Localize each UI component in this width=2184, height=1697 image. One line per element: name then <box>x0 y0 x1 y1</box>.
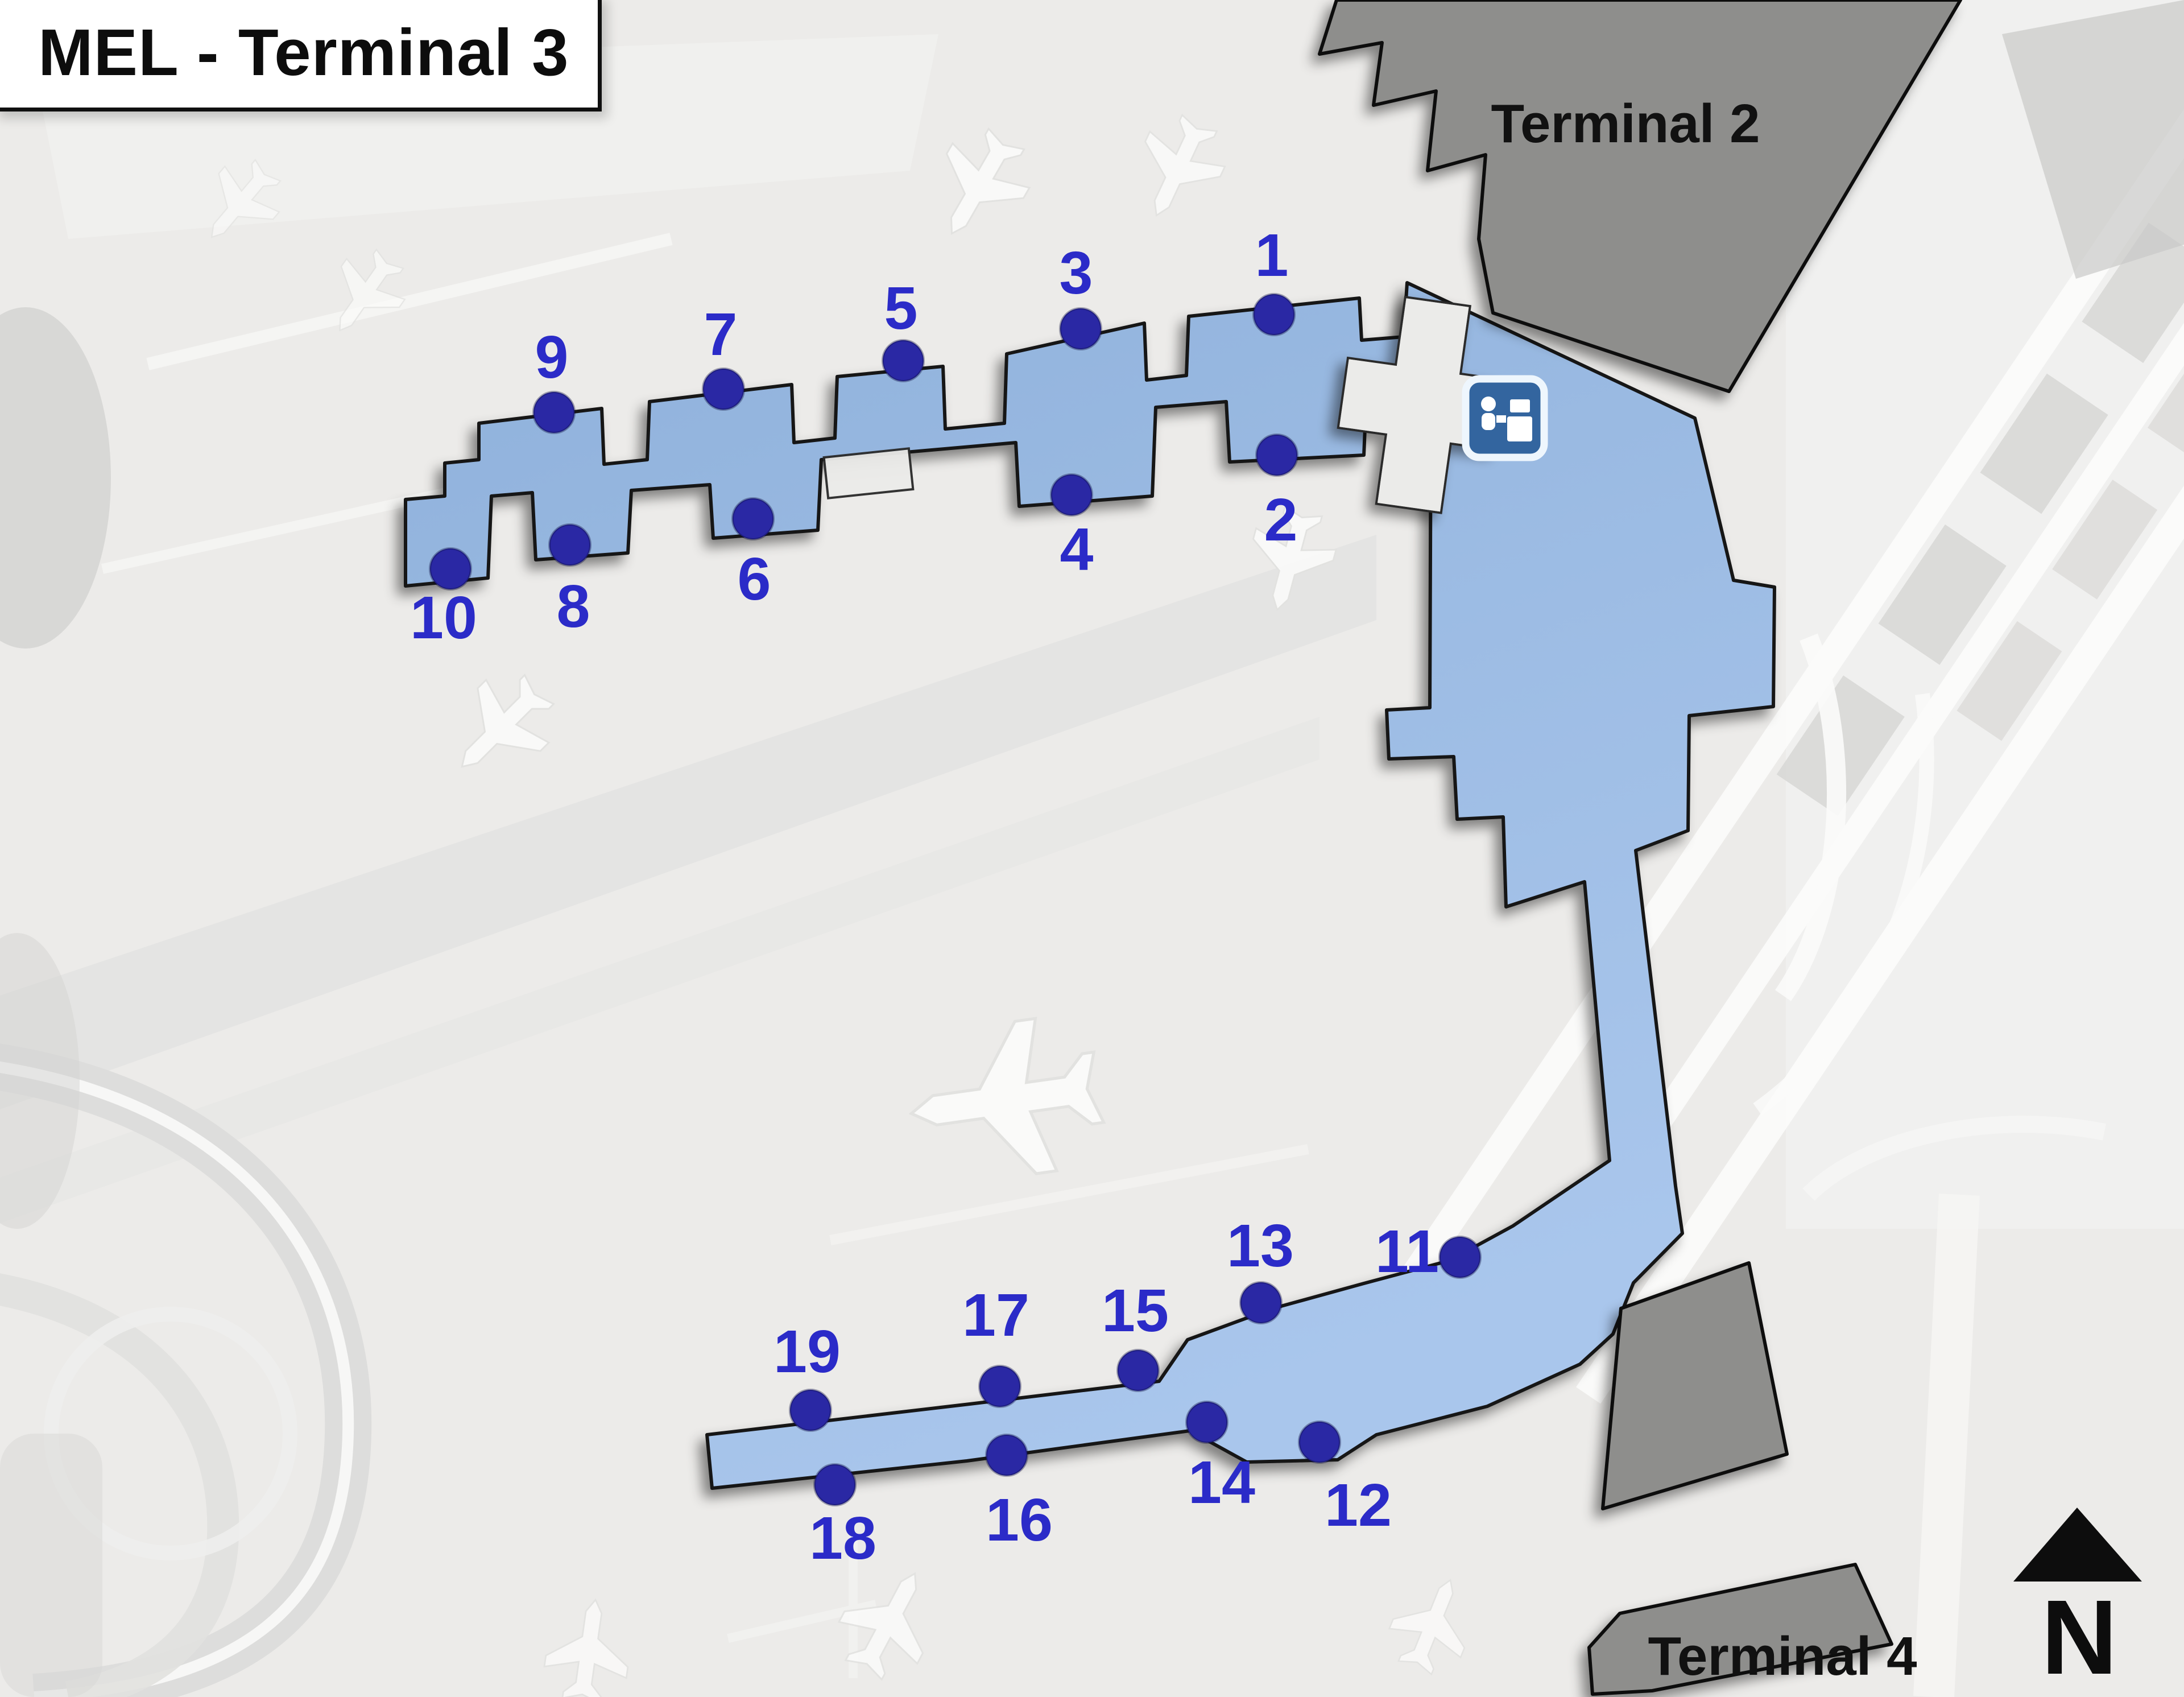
gate-13-dot[interactable] <box>1240 1282 1281 1323</box>
gate-3-dot[interactable] <box>1060 308 1101 349</box>
gate-6-label: 6 <box>738 546 771 613</box>
gate-15-label: 15 <box>1102 1277 1169 1344</box>
gate-10-dot[interactable] <box>430 548 471 589</box>
gate-8-label: 8 <box>557 573 590 640</box>
terminal-4-label: Terminal 4 <box>1648 1626 1917 1687</box>
gate-11-dot[interactable] <box>1440 1237 1480 1278</box>
gate-7-label: 7 <box>704 301 738 368</box>
gate-9-dot[interactable] <box>533 392 574 433</box>
gate-12-label: 12 <box>1325 1472 1392 1539</box>
gate-18-label: 18 <box>809 1505 876 1572</box>
map-title-box: MEL - Terminal 3 <box>0 0 602 112</box>
gate-14-dot[interactable] <box>1186 1402 1227 1443</box>
gate-4-dot[interactable] <box>1051 474 1092 515</box>
gate-8-dot[interactable] <box>549 525 590 565</box>
map-canvas: Terminal 2 Terminal 4 N 1234567891011121… <box>0 0 2184 1697</box>
gate-16-label: 16 <box>986 1487 1053 1554</box>
gate-3-label: 3 <box>1060 240 1093 307</box>
gate-17-label: 17 <box>962 1282 1029 1349</box>
gate-12-dot[interactable] <box>1299 1422 1340 1463</box>
gate-19-dot[interactable] <box>790 1390 831 1431</box>
gate-18-dot[interactable] <box>814 1464 855 1505</box>
gate-2-dot[interactable] <box>1256 435 1297 476</box>
gate-11-label: 11 <box>1375 1218 1439 1285</box>
gate-6-dot[interactable] <box>733 498 773 539</box>
passport-control-icon <box>1466 379 1544 457</box>
gate-1-dot[interactable] <box>1254 294 1294 335</box>
north-label: N <box>2041 1579 2117 1696</box>
page-title: MEL - Terminal 3 <box>38 14 569 90</box>
gate-13-label: 13 <box>1227 1212 1294 1279</box>
gate-2-label: 2 <box>1264 486 1298 554</box>
terminal-2-label: Terminal 2 <box>1491 93 1760 154</box>
gate-5-label: 5 <box>884 275 918 342</box>
gate-10-label: 10 <box>410 584 477 651</box>
gate-14-label: 14 <box>1188 1449 1255 1516</box>
gate-19-label: 19 <box>773 1318 841 1385</box>
gate-5-dot[interactable] <box>883 340 924 381</box>
gate-7-dot[interactable] <box>703 369 744 410</box>
gate-1-label: 1 <box>1255 222 1289 289</box>
gate-4-label: 4 <box>1060 516 1094 583</box>
gate-9-label: 9 <box>535 324 569 391</box>
gate-17-dot[interactable] <box>979 1366 1020 1407</box>
airport-map: Terminal 2 Terminal 4 N 1234567891011121… <box>0 0 2184 1697</box>
gate-16-dot[interactable] <box>986 1435 1027 1476</box>
gate-15-dot[interactable] <box>1118 1350 1159 1391</box>
